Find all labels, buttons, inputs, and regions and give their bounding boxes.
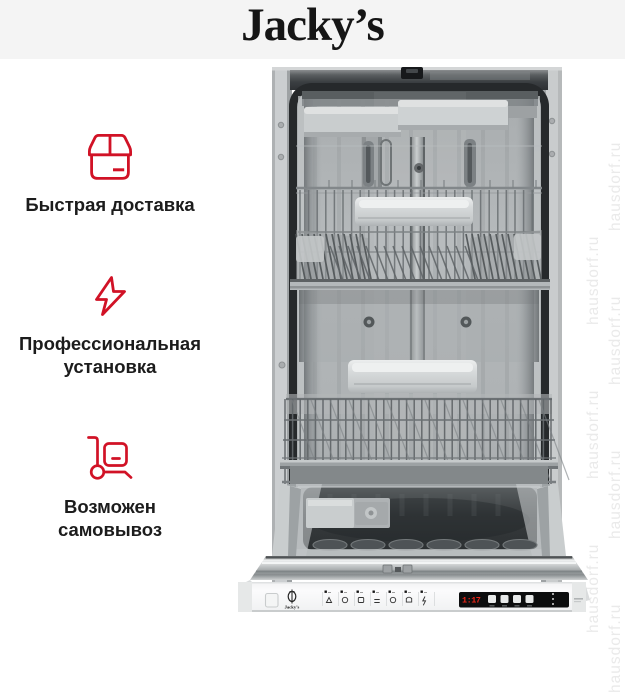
svg-text:Jacky’s: Jacky’s (285, 605, 300, 610)
svg-text:1:17: 1:17 (462, 596, 481, 606)
